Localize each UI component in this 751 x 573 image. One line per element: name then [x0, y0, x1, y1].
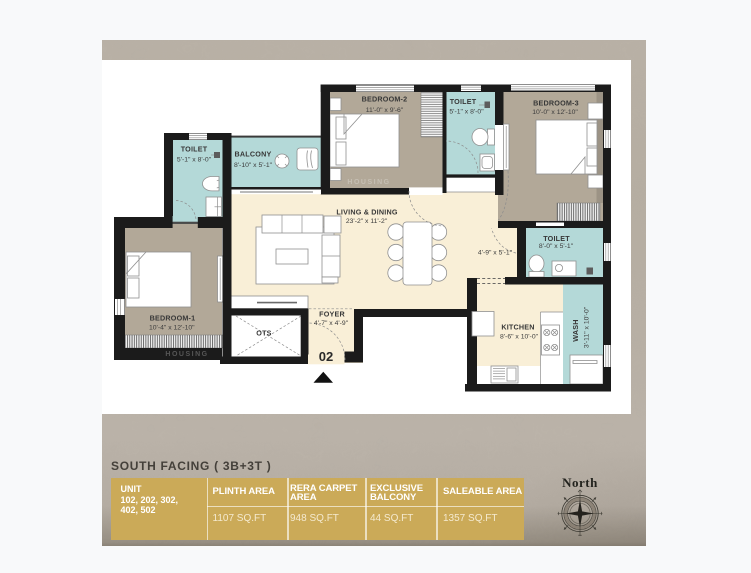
svg-text:LIVING & DINING: LIVING & DINING — [336, 208, 398, 217]
svg-text:TOILET: TOILET — [543, 234, 570, 243]
svg-text:BEDROOM-3: BEDROOM-3 — [533, 99, 579, 108]
svg-text:5'-1" x 8'-0": 5'-1" x 8'-0" — [177, 157, 212, 164]
svg-text:8'-6" x 10'-0": 8'-6" x 10'-0" — [500, 334, 539, 341]
svg-text:WASH: WASH — [571, 319, 580, 341]
svg-text:TOILET: TOILET — [450, 97, 477, 106]
svg-text:BEDROOM-2: BEDROOM-2 — [362, 95, 408, 104]
svg-text:23'-2" x 11'-2": 23'-2" x 11'-2" — [346, 218, 388, 225]
svg-text:10'-4" x 12'-10": 10'-4" x 12'-10" — [149, 325, 195, 332]
svg-text:8'-0" x 5'-1": 8'-0" x 5'-1" — [539, 243, 574, 250]
svg-text:BALCONY: BALCONY — [235, 150, 272, 159]
svg-text:KITCHEN: KITCHEN — [501, 323, 534, 332]
svg-text:TOILET: TOILET — [181, 145, 208, 154]
svg-text:5'-1" x 8'-0": 5'-1" x 8'-0" — [449, 109, 484, 116]
svg-text:FOYER: FOYER — [319, 310, 345, 319]
svg-text:HOUSING: HOUSING — [165, 351, 208, 358]
svg-text:11'-0" x 9'-6": 11'-0" x 9'-6" — [366, 107, 404, 114]
svg-text:02: 02 — [319, 349, 333, 364]
svg-text:OTS: OTS — [256, 329, 271, 338]
svg-text:BEDROOM-1: BEDROOM-1 — [150, 314, 196, 323]
svg-text:4'-9" x 5'-1": 4'-9" x 5'-1" — [478, 250, 513, 257]
svg-text:8'-10" x 5'-1": 8'-10" x 5'-1" — [234, 162, 273, 169]
svg-text:4'-7" x 4'-9": 4'-7" x 4'-9" — [314, 320, 349, 327]
svg-text:HOUSING: HOUSING — [347, 179, 390, 186]
svg-text:10'-0" x 12'-10": 10'-0" x 12'-10" — [532, 109, 578, 116]
svg-text:North: North — [562, 475, 598, 490]
svg-text:3'-11" x 10'-0": 3'-11" x 10'-0" — [584, 306, 591, 348]
